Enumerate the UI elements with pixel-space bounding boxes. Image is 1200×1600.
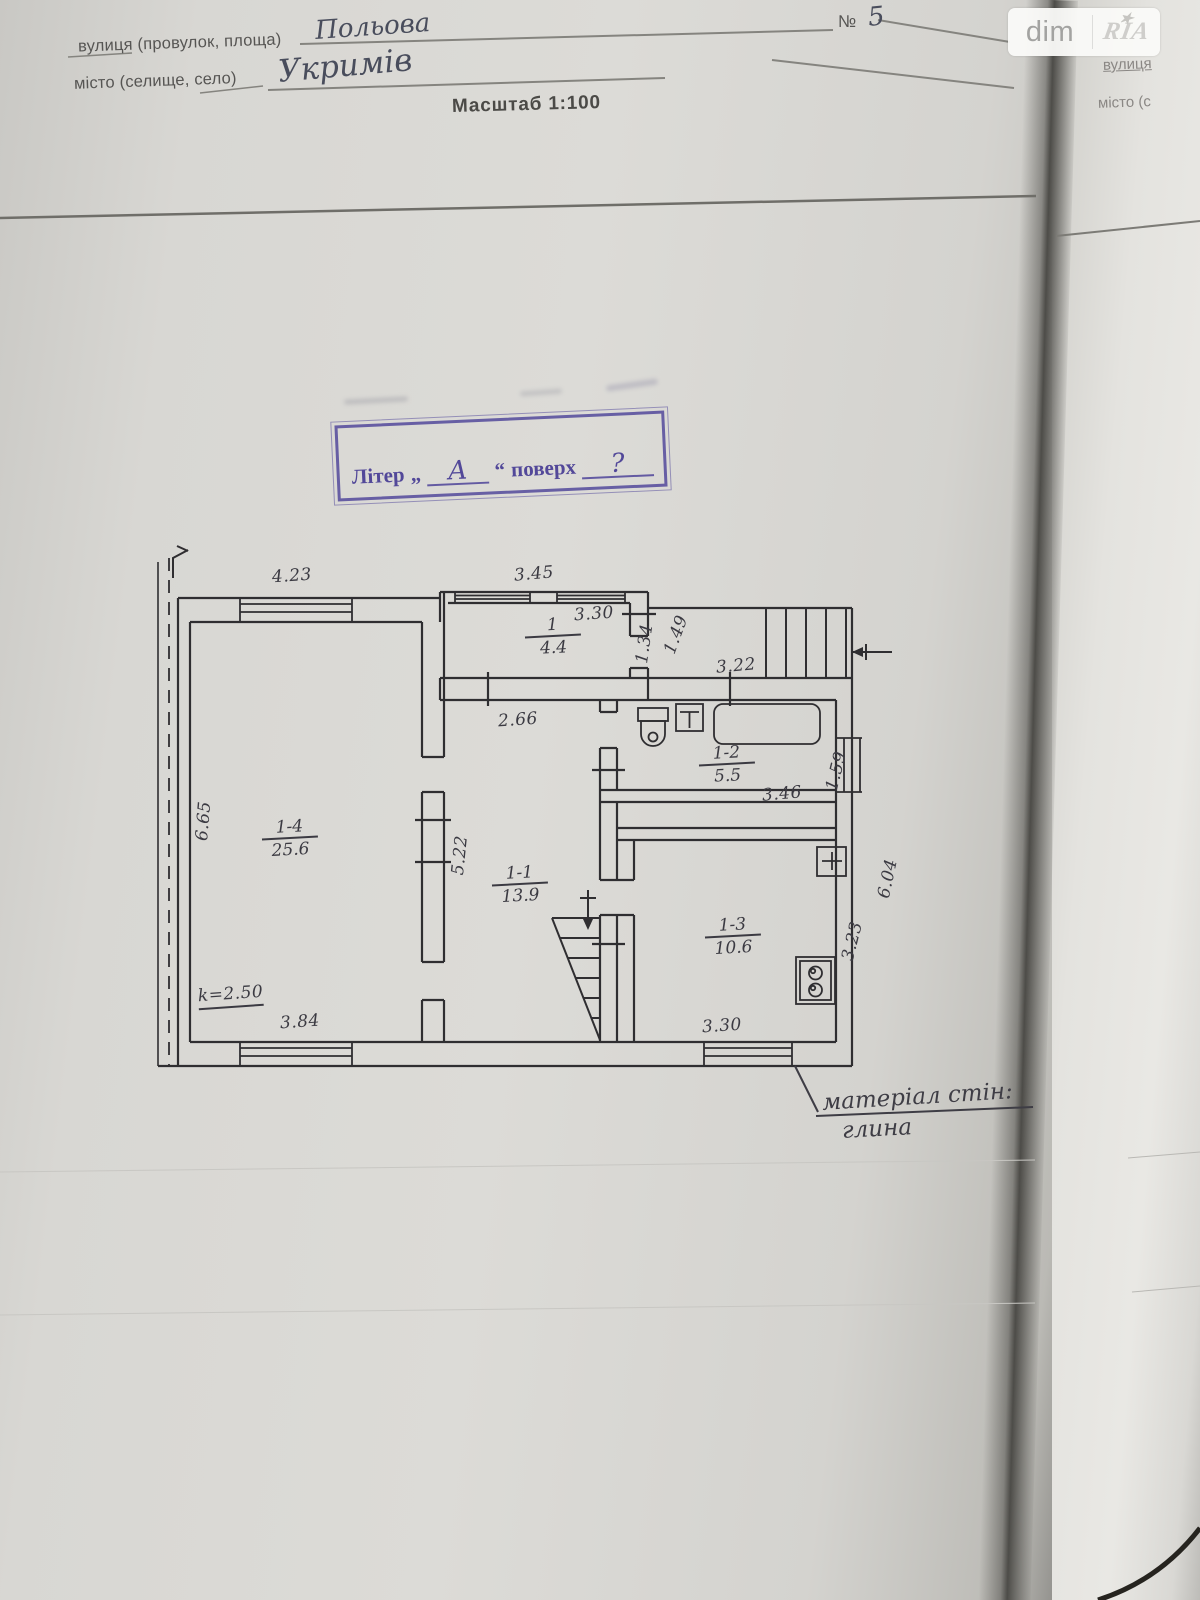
dim-logo-text: dim	[1008, 16, 1092, 49]
floor-plan-drawing	[0, 0, 1200, 1600]
site-boundary	[158, 546, 188, 1066]
scanned-floor-plan-sheet: вулиця (провулок, площа) Польова місто (…	[0, 0, 1200, 1600]
dim-top-left-window: 4.23	[271, 565, 312, 588]
porch-stairs	[766, 608, 892, 678]
stamp-word-liter: Літер	[351, 462, 405, 489]
room-label-1-2: 1-2 5.5	[694, 742, 760, 787]
stamp-letter-value: А	[426, 458, 489, 487]
dim-hall-depth: 5.22	[448, 834, 472, 876]
dim-living-window: 3.84	[279, 1011, 320, 1034]
stamp-open-quote: „	[410, 462, 422, 487]
scale-label: Масштаб 1:100	[452, 92, 601, 118]
dim-bath-width: 3.46	[761, 782, 802, 805]
toilet-icon	[638, 708, 668, 721]
dim-hall-width: 2.66	[497, 709, 538, 732]
dim-ria-watermark: dim ★ RIA	[1008, 8, 1160, 56]
page-rule	[0, 196, 1036, 218]
stamp-close-quote: “	[494, 458, 506, 483]
interior-stairs	[552, 890, 600, 1040]
room-label-1-3: 1-3 10.6	[700, 914, 766, 959]
room-label-1-1: 1-1 13.9	[487, 862, 553, 907]
next-page-city-label: місто (с	[1098, 93, 1151, 112]
paper-creases	[0, 1152, 1200, 1315]
next-page-curl-edge	[1098, 1528, 1200, 1600]
dim-living-depth: 6.65	[192, 800, 215, 841]
dim-vestibule-width: 3.30	[573, 603, 614, 626]
dim-vestibule-window: 3.45	[513, 562, 554, 585]
stamp-word-poverh: поверх	[511, 455, 577, 483]
ceiling-height-note: k=2.50	[197, 982, 264, 1011]
dim-kitchen-window: 3.30	[701, 1015, 742, 1038]
stamp-floor-value: ?	[581, 450, 654, 479]
next-page-street-label: вулиця	[1103, 55, 1152, 74]
number-value: 5	[866, 1, 886, 33]
next-page-rule	[1056, 221, 1200, 236]
number-sign: №	[838, 12, 856, 32]
ria-logo-text: ★ RIA	[1091, 18, 1163, 46]
bathtub-icon	[714, 704, 820, 744]
room-label-1-4: 1-4 25.6	[257, 816, 323, 861]
wall-material-note-line2: глина	[841, 1114, 912, 1144]
dim-porch-width: 3.22	[715, 654, 756, 677]
liter-floor-stamp: Літер „ А “ поверх ?	[334, 411, 667, 502]
